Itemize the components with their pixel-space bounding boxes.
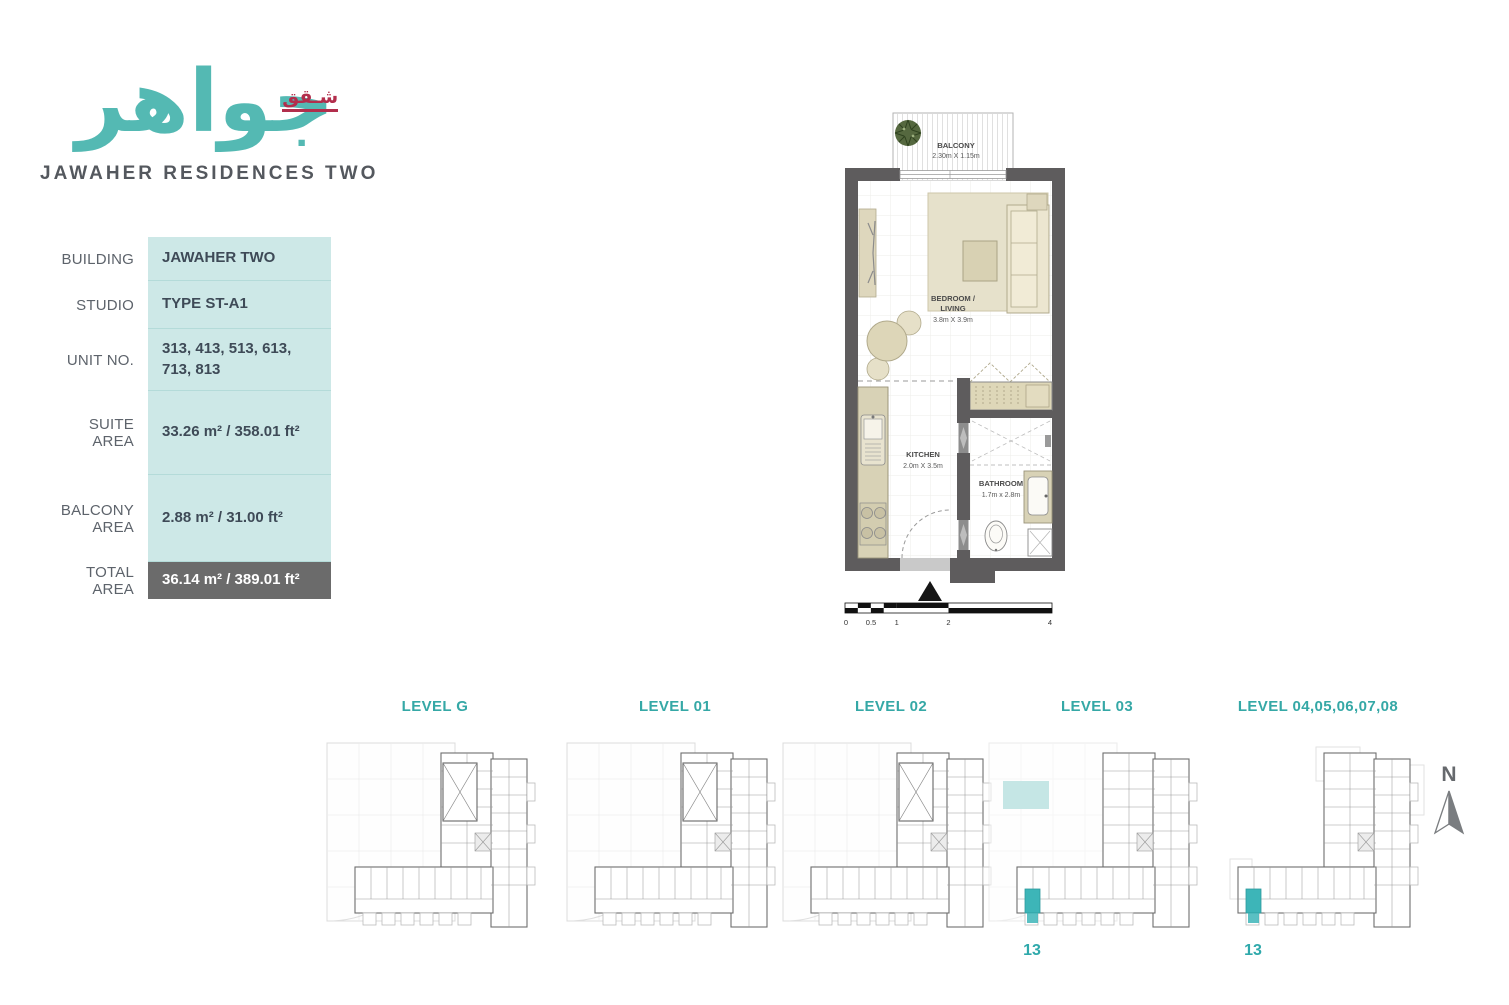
level-03-label: LEVEL 03 (987, 698, 1207, 715)
level-04-08-block: LEVEL 04,05,06,07,08 13 (1208, 698, 1428, 972)
tv-unit-icon (859, 209, 876, 297)
highlighted-unit (1246, 889, 1261, 913)
balcony-door (900, 171, 1006, 179)
scale-bar: 0 0.5 1 2 4 (844, 603, 1052, 627)
spec-label: SUITE AREA (45, 416, 134, 450)
spec-label: TOTAL AREA (45, 564, 134, 598)
brand-title: JAWAHER RESIDENCES TWO (40, 163, 370, 185)
spec-row-building: BUILDING JAWAHER TWO (45, 237, 331, 281)
level-g-block: LEVEL G (325, 698, 545, 972)
level-02-block: LEVEL 02 (781, 698, 1001, 972)
spec-value: 33.26 m² / 358.01 ft² (148, 391, 331, 475)
pool (1003, 781, 1049, 809)
bedroom-dims: 3.8m X 3.9m (933, 317, 973, 324)
scale-tick: 2 (946, 618, 950, 627)
toilet-icon (985, 521, 1007, 551)
unit-number-label: 13 (1023, 942, 1041, 959)
brand-logo-arabic: جواهر شـقق (76, 52, 335, 153)
level-02-plan (781, 737, 1001, 967)
kitchen-dims: 2.0m X 3.5m (903, 463, 943, 470)
spec-row-unit-no: UNIT NO. 313, 413, 513, 613, 713, 813 (45, 329, 331, 391)
spec-label: STUDIO (45, 297, 134, 314)
side-table-icon (1027, 194, 1047, 210)
balcony-dims: 2.30m X 1.15m (932, 153, 980, 160)
spec-table: BUILDING JAWAHER TWO STUDIO TYPE ST-A1 U… (45, 237, 331, 599)
level-02-label: LEVEL 02 (781, 698, 1001, 715)
scale-tick: 4 (1048, 618, 1052, 627)
bedroom-label-line2: LIVING (940, 304, 965, 313)
spec-row-suite-area: SUITE AREA 33.26 m² / 358.01 ft² (45, 391, 331, 475)
level-01-block: LEVEL 01 (565, 698, 785, 972)
bathroom-label: BATHROOM (979, 479, 1023, 488)
level-04-08-label: LEVEL 04,05,06,07,08 (1208, 698, 1428, 715)
spec-label: UNIT NO. (45, 352, 134, 369)
brand-block: جواهر شـقق JAWAHER RESIDENCES TWO (40, 52, 370, 185)
spec-label: BALCONY AREA (45, 502, 134, 536)
bathroom-dims: 1.7m x 2.8m (982, 492, 1021, 499)
spec-value: TYPE ST-A1 (148, 281, 331, 329)
entrance-marker-icon (918, 581, 942, 601)
spec-value: 2.88 m² / 31.00 ft² (148, 475, 331, 562)
level-04-08-plan: 13 (1208, 737, 1428, 967)
entry-threshold (900, 558, 950, 571)
level-01-plan (565, 737, 785, 967)
spec-value: JAWAHER TWO (148, 237, 331, 281)
level-01-label: LEVEL 01 (565, 698, 785, 715)
sofa-icon (1007, 205, 1049, 313)
highlighted-unit (1025, 889, 1040, 913)
scale-tick: 0 (844, 618, 848, 627)
stove-icon (860, 503, 886, 545)
bedroom-label-line1: BEDROOM / (931, 294, 976, 303)
sink-icon (861, 415, 885, 465)
level-g-plan (325, 737, 545, 967)
level-03-block: LEVEL 03 13 (987, 698, 1207, 972)
spec-value: 313, 413, 513, 613, 713, 813 (148, 329, 331, 391)
compass: N (1425, 763, 1473, 844)
floor-drain-icon (1028, 529, 1052, 556)
level-03-plan: 13 (987, 737, 1207, 967)
balcony-label: BALCONY (937, 141, 975, 150)
spec-row-total-area: TOTAL AREA 36.14 m² / 389.01 ft² (45, 562, 331, 599)
north-arrow-icon (1427, 787, 1471, 839)
scale-tick: 1 (895, 618, 899, 627)
highlighted-unit-balcony (1248, 913, 1259, 923)
kitchen-label: KITCHEN (906, 450, 940, 459)
coffee-table-icon (963, 241, 997, 281)
highlighted-unit-balcony (1027, 913, 1038, 923)
vanity-sink-icon (1024, 471, 1052, 523)
plant-icon (895, 120, 921, 146)
unit-number-label: 13 (1244, 942, 1262, 959)
compass-north-label: N (1425, 763, 1473, 787)
logo-badge-arabic: شـقق (282, 86, 338, 112)
spec-row-balcony-area: BALCONY AREA 2.88 m² / 31.00 ft² (45, 475, 331, 562)
spec-row-studio: STUDIO TYPE ST-A1 (45, 281, 331, 329)
unit-floor-plan: BALCONY 2.30m X 1.15m (830, 95, 1090, 630)
spec-label: BUILDING (45, 251, 134, 268)
scale-tick: 0.5 (866, 618, 876, 627)
spec-value: 36.14 m² / 389.01 ft² (148, 562, 331, 599)
level-g-label: LEVEL G (325, 698, 545, 715)
